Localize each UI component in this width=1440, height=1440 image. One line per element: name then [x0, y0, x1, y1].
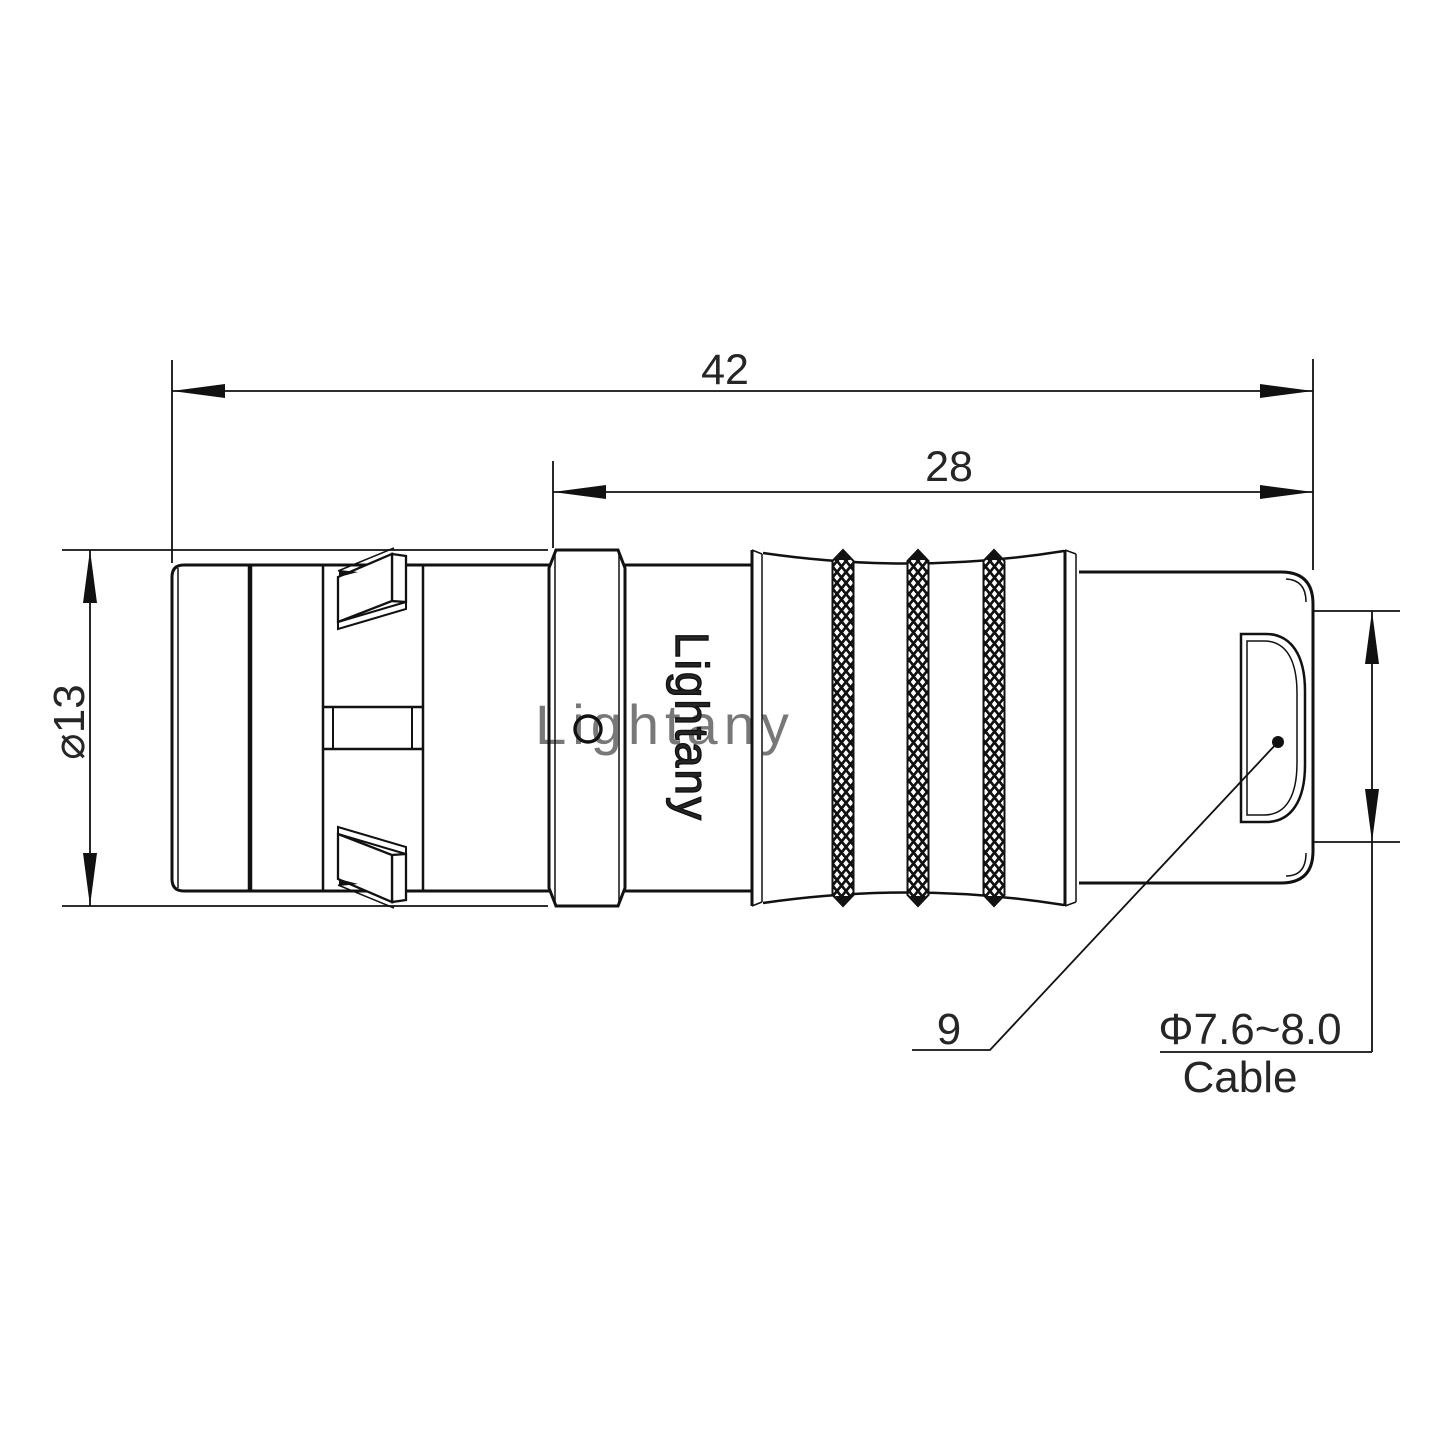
drawing-page: Lightany [0, 0, 1440, 1440]
knurl-band-1 [833, 550, 854, 906]
label-backnut: 9 [937, 1005, 961, 1054]
label-body-diameter: ⌀13 [45, 684, 94, 759]
connector-drawing-canvas: Lightany [0, 0, 1440, 1440]
body-marking-text: Lightany [666, 632, 718, 822]
label-cable-diameter: Φ7.6~8.0 [1158, 1005, 1341, 1054]
label-overall-length: 42 [701, 346, 749, 394]
knurl-band-3 [984, 550, 1005, 906]
knurl-band-2 [908, 550, 929, 906]
label-cable-caption: Cable [1183, 1053, 1298, 1102]
label-rear-length: 28 [925, 443, 973, 491]
